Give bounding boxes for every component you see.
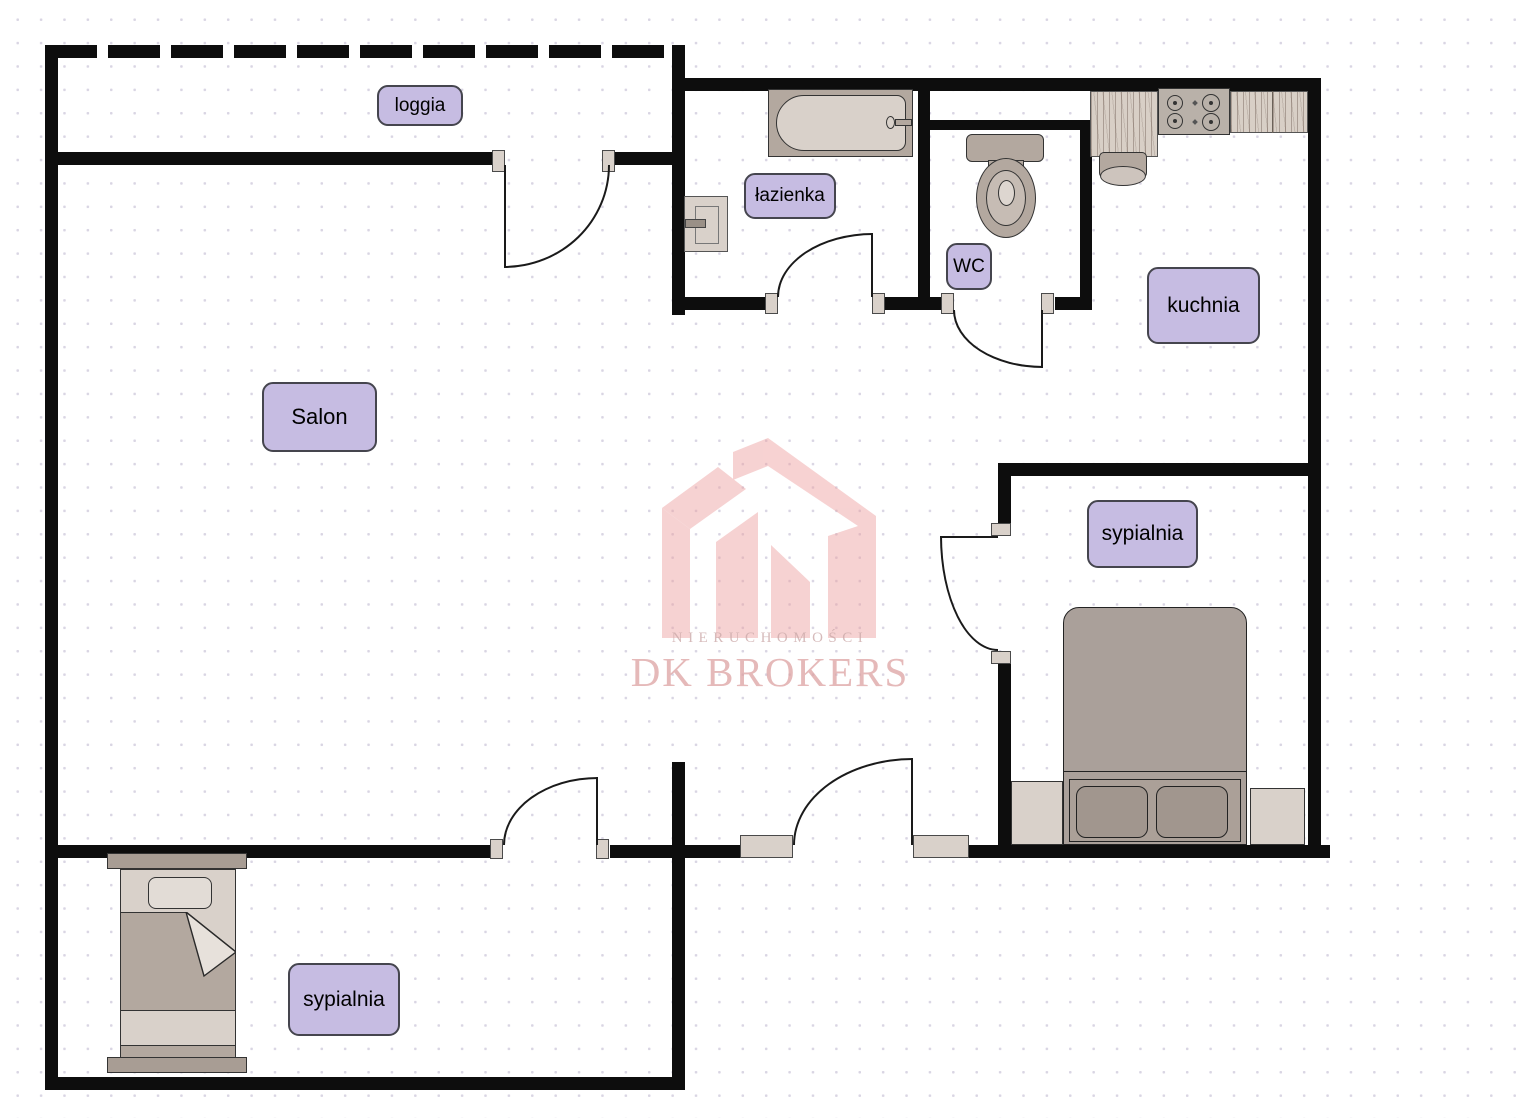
door-threshold: [740, 835, 793, 858]
door-swing-loggia: [504, 165, 610, 268]
room-label-text: kuchnia: [1167, 294, 1239, 318]
pillow: [1076, 786, 1148, 838]
wall-bathroom-wc-bottom-mid: [885, 297, 941, 310]
blanket-fold-icon: [120, 912, 236, 1011]
wall-bedroom-right-bottom: [1010, 845, 1330, 858]
door-jamb: [872, 293, 885, 314]
bathtub-faucet-icon: [886, 116, 895, 129]
room-label-kuchnia: kuchnia: [1147, 267, 1260, 344]
stove-burner-icon: [1202, 113, 1220, 131]
toilet-bowl-center: [998, 180, 1015, 206]
wall-loggia-bottom-left: [45, 152, 497, 165]
room-label-text: Salon: [291, 404, 347, 430]
room-label-wc: WC: [946, 243, 992, 290]
nightstand: [1011, 781, 1063, 845]
kitchen-counter-seam: [1272, 91, 1273, 133]
kitchen-counter-left: [1090, 91, 1158, 157]
dk-brokers-house-icon: [658, 432, 880, 640]
room-label-text: sypialnia: [303, 988, 385, 1012]
kitchen-stove: [1158, 88, 1230, 135]
watermark-line1: NIERUCHOMOŚCI: [640, 630, 900, 647]
wall-bathroom-bottom-left: [672, 297, 765, 310]
stove-burner-icon: [1202, 94, 1220, 112]
wall-bottom-room-divider: [672, 762, 685, 1090]
room-label-loggia: loggia: [377, 85, 463, 126]
door-swing-bedroom-right: [940, 536, 998, 651]
room-label-text: łazienka: [755, 185, 825, 207]
door-swing-wc: [953, 310, 1043, 368]
room-label-text: WC: [953, 256, 985, 278]
washbasin-tap-icon: [685, 219, 706, 228]
wall-wc-shaft: [930, 120, 1092, 130]
room-label-text: sypialnia: [1102, 522, 1184, 546]
double-bed-fold-line: [1063, 771, 1247, 772]
wall-bedroom-right-left-upper: [998, 463, 1011, 523]
pillow: [1156, 786, 1228, 838]
room-label-salon: Salon: [262, 382, 377, 452]
wall-bottom-main-c: [968, 845, 1010, 858]
door-jamb: [490, 839, 503, 859]
kitchen-counter-right: [1230, 91, 1308, 133]
single-bed-headboard: [107, 853, 247, 869]
room-label-text: loggia: [395, 95, 446, 117]
door-jamb: [991, 523, 1011, 536]
wall-bathroom-wc-divider: [918, 78, 930, 310]
wall-bedroom-right-left-lower: [998, 664, 1011, 858]
door-swing-hall: [793, 758, 913, 845]
kitchen-sink-bowl: [1100, 166, 1146, 186]
watermark-line2: DK BROKERS: [620, 648, 920, 696]
wall-loggia-exterior-dashed: [45, 45, 672, 58]
door-swing-bedroom-bottom: [503, 777, 598, 845]
door-threshold: [913, 835, 969, 858]
single-bed-footboard: [107, 1057, 247, 1073]
wall-outer-left: [45, 45, 58, 1090]
pillow: [148, 877, 212, 909]
room-label-lazienka: łazienka: [744, 173, 836, 219]
door-swing-bathroom: [777, 233, 873, 297]
wall-bedroom-right-top: [999, 463, 1321, 476]
stove-burner-icon: [1167, 113, 1183, 129]
wall-outer-bottom: [45, 1077, 685, 1090]
room-label-sypialnia-right: sypialnia: [1087, 500, 1198, 568]
wall-wc-bottom-right: [1055, 297, 1092, 310]
stove-burner-icon: [1167, 95, 1183, 111]
room-label-sypialnia-bottom: sypialnia: [288, 963, 400, 1036]
bathtub-spout-icon: [895, 119, 912, 126]
door-jamb: [991, 651, 1011, 664]
nightstand: [1250, 788, 1305, 845]
watermark: NIERUCHOMOŚCI DK BROKERS: [640, 430, 900, 702]
floor-plan: loggia łazienka WC kuchnia Salon sypialn…: [0, 0, 1534, 1118]
